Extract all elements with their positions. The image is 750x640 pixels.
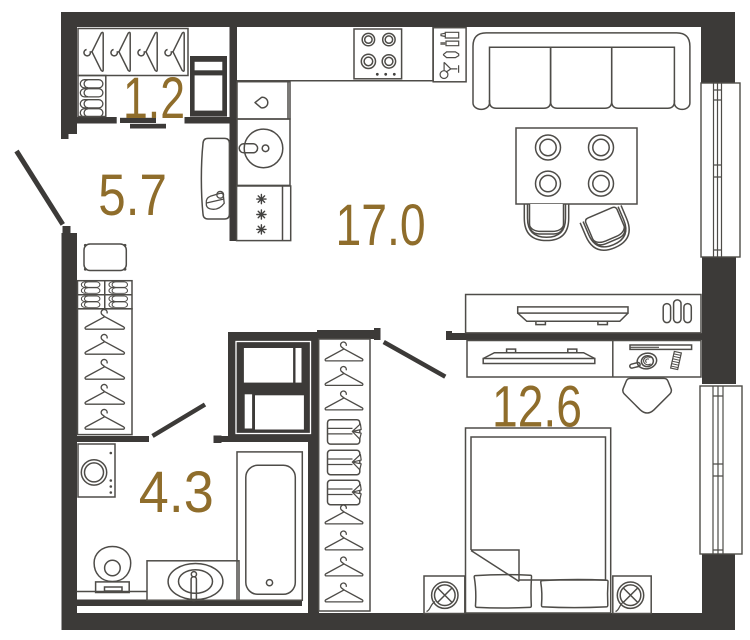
svg-text:17.0: 17.0 [336, 193, 426, 258]
svg-text:12.6: 12.6 [492, 375, 582, 440]
svg-text:1.2: 1.2 [123, 66, 185, 131]
svg-text:4.3: 4.3 [139, 460, 214, 525]
svg-text:5.7: 5.7 [98, 163, 167, 228]
